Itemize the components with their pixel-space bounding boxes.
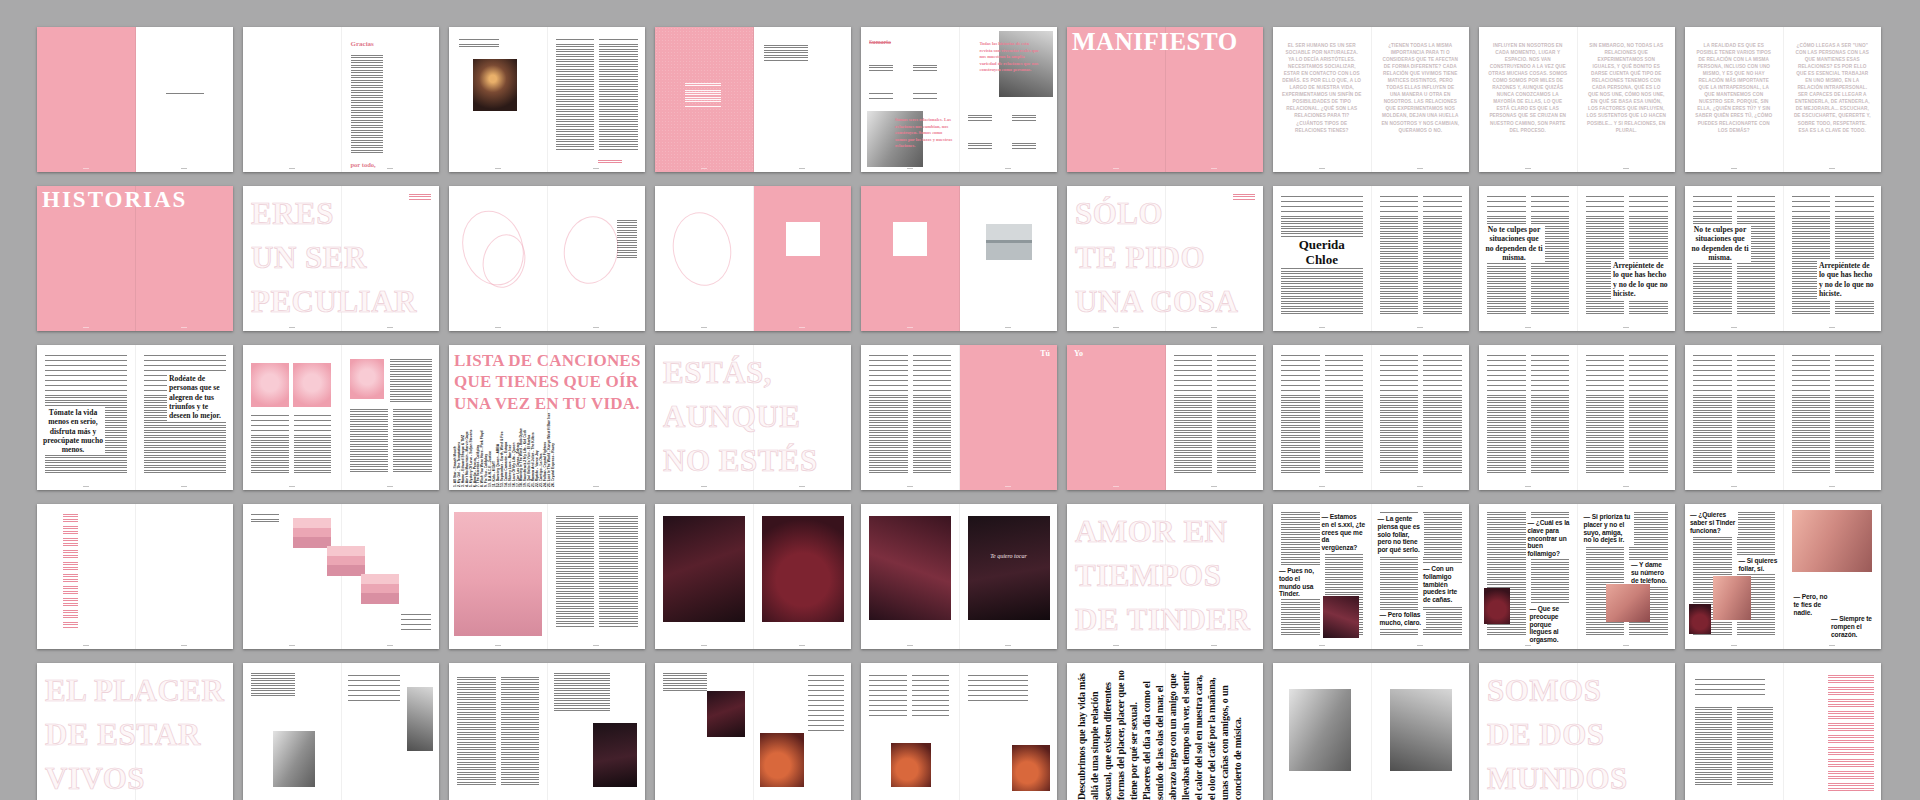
thanks-title: Gracias [351,41,374,48]
body-text-columns [556,516,638,628]
page-right: ¿CÓMO LLEGAS A SER "UNO" CON LAS PERSONA… [1784,27,1882,172]
page-right [1578,345,1676,490]
spread-r1c5[interactable]: Sumario Somos seres relacionales. Las re… [861,27,1057,172]
page-left: — ¿Cuál es la clave para encontrar un bu… [1479,504,1578,649]
photo-dark-red [762,516,844,622]
page-right: Te quiero tocar [960,504,1058,649]
photo-skin [1606,584,1650,622]
caption-text-block [251,514,279,524]
page-left: LA REALIDAD ES QUE ES POSIBLE TENER VARI… [1685,27,1784,172]
page-left [243,27,342,172]
page-left: No te culpes por situaciones que no depe… [1685,186,1784,331]
spread-r2c1[interactable]: HISTORIAS [37,186,233,331]
spread-r4c3[interactable] [449,504,645,649]
spread-r3c8[interactable] [1479,345,1675,490]
page-right: Rodéate de personas que se alegren de tu… [136,345,234,490]
photo-bw-legs [593,723,637,787]
pull-quote: Tómate la vida menos en serio, disfruta … [41,407,105,455]
photo-warm [1012,745,1050,791]
pull-quote: No te culpes por situaciones que no depe… [1689,224,1751,263]
body-text-block [663,673,707,691]
page-right [1372,345,1470,490]
spread-r5c9[interactable] [1685,663,1881,800]
interview-quote: — Si prioriza tu placer y no el suyo, am… [1582,512,1634,545]
page-left: No te culpes por situaciones que no depe… [1479,186,1578,331]
page-left [243,663,342,800]
photo-dark-caption: Te quiero tocar [968,516,1050,620]
letter-title: Querida Chloe [1273,238,1371,267]
photo-bw-nude [1289,689,1351,771]
page-left: INFLUYEN EN NOSOTROS EN CADA MOMENTO, LU… [1479,27,1578,172]
toc-entry [869,93,893,100]
page-right [1372,663,1470,800]
body-text-columns [869,355,951,475]
page-right [960,186,1058,331]
historias-title: HISTORIAS [42,188,231,212]
spread-r1c6[interactable]: MANIFIESTO [1067,27,1263,172]
body-text-block [251,673,295,697]
interview-quote: — Estamos en el s.xxi, ¿te crees que me … [1320,512,1368,553]
photo-hands [1713,576,1751,620]
body-text-block [554,673,610,713]
page-right [1784,663,1882,800]
photo-pink-object [350,359,384,399]
page-right [754,186,852,331]
page-right [754,27,852,172]
spread-r2c7[interactable]: Querida Chloe [1273,186,1469,331]
page-left [37,27,136,172]
interview-quote: — Y dame su número de teléfono. [1629,560,1673,585]
interview-quote: — Que se preocupe porque llegues al orga… [1528,604,1574,645]
sketch-line-art [558,212,623,288]
page-left [1685,345,1784,490]
page-right [136,27,234,172]
page-right [960,663,1058,800]
body-text-block [1695,679,1765,699]
pull-quote: Arrepiéntete de lo que has hecho y no de… [1817,260,1877,299]
toc-entry [1012,143,1036,150]
page-right [548,663,646,800]
body-text-block [968,675,1028,705]
photo-night-street [663,516,745,622]
pull-quote: Arrepiéntete de lo que has hecho y no de… [1611,260,1671,299]
body-text-columns [1487,355,1569,475]
ghost-title: SOMOS DE DOS MUNDOS [1487,669,1673,800]
intro-text-block [459,39,499,47]
row-2: HISTORIAS ERES UN SER PECULIAR [37,186,1920,331]
body-text-columns [1174,355,1256,475]
page-left: — Estamos en el s.xxi, ¿te crees que me … [1273,504,1372,649]
spread-r2c8[interactable]: No te culpes por situaciones que no depe… [1479,186,1675,331]
photo-bw-nude [1390,689,1452,771]
page-right: Arrepiéntete de lo que has hecho y no de… [1784,186,1882,331]
page-left [449,504,548,649]
interview-quote: — Con un follamigo también puedes irte d… [1421,564,1467,605]
body-text-columns [350,409,432,473]
photo-small-red [1484,588,1510,624]
interview-quote: — ¿Cuál es la clave para encontrar un bu… [1526,518,1574,559]
spread-r1c7[interactable]: EL SER HUMANO ES UN SER SOCIABLE POR NAT… [1273,27,1469,172]
label-yo: Yo [1074,350,1083,358]
page-left [1273,663,1372,800]
page-right: ¿TIENEN TODAS LA MISMA IMPORTANCIA PARA … [1372,27,1470,172]
spread-r4c2[interactable] [243,504,439,649]
manifesto-caps-text: SIN EMBARGO, NO TODAS LAS RELACIONES QUE… [1587,42,1667,134]
spread-r4c7[interactable]: — Estamos en el s.xxi, ¿te crees que me … [1273,504,1469,649]
body-text-columns [1380,196,1462,314]
ghost-title: SÓLO TE PIDO UNA COSA [1075,192,1261,324]
page-left: EL SER HUMANO ES UN SER SOCIABLE POR NAT… [1273,27,1372,172]
spread-r2c5[interactable] [861,186,1057,331]
spread-r5c2[interactable] [243,663,439,800]
body-text-columns [1695,707,1773,787]
photo-dark-pink [869,516,951,620]
page-left [861,186,960,331]
spread-r2c9[interactable]: No te culpes por situaciones que no depe… [1685,186,1881,331]
ghost-title: ESTÁS, AUNQUE NO ESTÉS [663,351,849,483]
interview-quote: — Si quieres follar, sí. [1737,556,1781,574]
interview-quote: — Siempre te rompen el corazón. [1829,614,1877,639]
page-right: SIN EMBARGO, NO TODAS LAS RELACIONES QUE… [1578,27,1676,172]
page-left: Tómate la vida menos en serio, disfruta … [37,345,136,490]
spread-r4c5[interactable]: Te quiero tocar [861,504,1057,649]
page-right [548,27,646,172]
photo-beach-pink [293,518,331,548]
page-left: Querida Chloe [1273,186,1372,331]
dedication-text-block [166,93,204,96]
page-right: Gracias por todo, [342,27,440,172]
body-text-columns [1586,355,1668,475]
spread-r5c7[interactable] [1273,663,1469,800]
rose-text-block [1828,675,1874,791]
interview-quote: — ¿Quieres saber si Tinder funciona? [1688,510,1738,535]
spread-r2c2[interactable]: ERES UN SER PECULIAR [243,186,439,331]
photo-sea-horizon [986,224,1032,260]
manifesto-caps-text: ¿TIENEN TODAS LA MISMA IMPORTANCIA PARA … [1381,42,1461,134]
body-text-columns [869,675,949,719]
page-left: Yo [1067,345,1166,490]
page-right [1372,186,1470,331]
playlist-title: LISTA DE CANCIONES QUE TIENES QUE OÍR UN… [454,350,643,414]
row-5: EL PLACER DE ESTAR VIVOS [37,663,1920,800]
spread-r2c6[interactable]: SÓLO TE PIDO UNA COSA [1067,186,1263,331]
page-left [1273,345,1372,490]
spread-r5c6[interactable]: Descubrimos que hay vida más allá de una… [1067,663,1263,800]
page-right: Todas las historias de esta revista son … [960,27,1058,172]
manifesto-caps-text: EL SER HUMANO ES UN SER SOCIABLE POR NAT… [1282,42,1362,134]
body-text-columns [1380,355,1462,475]
page-left [1685,663,1784,800]
spread-r5c1[interactable]: EL PLACER DE ESTAR VIVOS [37,663,233,800]
spread-r1c1[interactable] [37,27,233,172]
toc-entry [913,93,937,100]
row-4: Te quiero tocar AMOR EN TIEMPOS DE TINDE… [37,504,1920,649]
photo-bw-tall [407,687,433,751]
spread-r3c2[interactable] [243,345,439,490]
manifesto-caps-text: INFLUYEN EN NOSOTROS EN CADA MOMENTO, LU… [1488,42,1568,134]
toc-entry [869,65,893,72]
interview-quote: — La gente piensa que es solo follar, pe… [1376,514,1424,555]
spread-r4c9[interactable]: — ¿Quieres saber si Tinder funciona? — S… [1685,504,1881,649]
page-left [1479,345,1578,490]
spread-r4c8[interactable]: — ¿Cuál es la clave para encontrar un bu… [1479,504,1675,649]
page-left [861,663,960,800]
photo-bw-person [273,731,315,787]
photo-warm [891,743,931,787]
body-text-columns [556,39,638,151]
photo-pink-object [251,363,289,407]
page-right [1784,345,1882,490]
white-square-frame [893,222,927,256]
signature-rose-line [598,160,622,164]
spread-r1c4[interactable] [655,27,851,172]
spread-r5c3[interactable] [449,663,645,800]
page-left [449,663,548,800]
pasteboard: Gracias por todo, [0,0,1920,800]
page-right [1166,345,1264,490]
spread-r2c3[interactable] [449,186,645,331]
sketch-line-art [667,208,737,291]
photo-dark [707,691,745,737]
white-center-text-block [685,83,721,107]
page-right: Arrepiéntete de lo que has hecho y no de… [1578,186,1676,331]
interview-quote: — Pues no, todo el mundo usa Tinder. [1277,566,1323,599]
page-left: Sumario Somos seres relacionales. Las re… [861,27,960,172]
photo-beach-pink [361,574,399,604]
spread-r1c2[interactable]: Gracias por todo, [243,27,439,172]
spread-r1c8[interactable]: INFLUYEN EN NOSOTROS EN CADA MOMENTO, LU… [1479,27,1675,172]
spread-r2c4[interactable] [655,186,851,331]
manifesto-caps-text: ¿CÓMO LLEGAS A SER "UNO" CON LAS PERSONA… [1793,42,1873,134]
spread-r3c3[interactable]: LISTA DE CANCIONES QUE TIENES QUE OÍR UN… [449,345,645,490]
caption-text-block [401,614,431,634]
body-text-columns [1693,355,1775,475]
manifesto-caps-text: LA REALIDAD ES QUE ES POSIBLE TENER VARI… [1694,42,1774,134]
body-text-block [348,675,400,703]
page-left [861,504,960,649]
photo-beach-pink [327,546,365,576]
body-text-columns [1281,355,1363,475]
photo-pink-object [293,363,331,407]
photo-pink-shore [454,512,542,636]
spread-r4c1[interactable] [37,504,233,649]
page-right [136,504,234,649]
caption-text-block [617,220,637,260]
row-1: Gracias por todo, [37,27,1920,172]
page-left [243,345,342,490]
toc-entry [913,65,937,72]
body-text-block [351,55,383,155]
spread-r5c4[interactable] [655,663,851,800]
page-right [754,504,852,649]
summary-right-note: Todas las historias de esta revista son … [980,41,1040,74]
page-left [37,504,136,649]
spread-r4c4[interactable] [655,504,851,649]
photo-small-dark [1323,596,1359,638]
photo-small-red [1689,604,1711,634]
thanks-closing: por todo, [351,161,376,168]
page-right [342,345,440,490]
body-text-columns [457,677,539,787]
page-right: — La gente piensa que es solo follar, pe… [1372,504,1470,649]
toc-entry [968,143,992,150]
photo-hands-large [1792,510,1872,572]
ghost-title: EL PLACER DE ESTAR VIVOS [45,669,231,800]
page-left [655,27,754,172]
pull-quote: Rodéate de personas que se alegren de tu… [167,373,229,421]
spread-r5c5[interactable] [861,663,1057,800]
body-text-columns [251,415,331,473]
toc-entry [1012,115,1036,122]
spread-r3c6[interactable]: Yo [1067,345,1263,490]
page-left [655,186,754,331]
page-left [655,504,754,649]
body-text-columns [1792,355,1874,475]
body-text-block [808,675,844,735]
body-text-block [764,45,808,61]
page-right: — Si prioriza tu placer y no el suyo, am… [1578,504,1676,649]
spread-r3c7[interactable] [1273,345,1469,490]
page-left [449,186,548,331]
row-3: Tómate la vida menos en serio, disfruta … [37,345,1920,490]
spread-r5c8[interactable]: SOMOS DE DOS MUNDOS [1479,663,1675,800]
spread-r1c9[interactable]: LA REALIDAD ES QUE ES POSIBLE TENER VARI… [1685,27,1881,172]
ghost-title: AMOR EN TIEMPOS DE TINDER [1075,510,1261,642]
page-left [655,663,754,800]
ghost-title: ERES UN SER PECULIAR [251,192,437,324]
label-tu: Tú [1040,350,1050,358]
page-right: Tú [960,345,1058,490]
interview-quote: — Pero follas mucho, claro. [1378,610,1426,628]
rose-text-column [63,514,78,628]
photo-warm-red [760,733,804,787]
page-right [342,663,440,800]
page-right [548,186,646,331]
pull-quote: No te culpes por situaciones que no depe… [1483,224,1545,263]
toc-entry [968,115,992,122]
page-right [754,663,852,800]
body-text-block [390,359,432,403]
spread-r3c5[interactable]: Tú [861,345,1057,490]
spread-r3c1[interactable]: Tómate la vida menos en serio, disfruta … [37,345,233,490]
page-right [548,504,646,649]
summary-left-note: Somos seres relacionales. Las relaciones… [895,117,953,150]
white-square-frame [786,222,820,256]
summary-heading: Sumario [869,39,891,45]
page-left: — ¿Quieres saber si Tinder funciona? — S… [1685,504,1784,649]
spread-r3c4[interactable]: ESTÁS, AUNQUE NO ESTÉS [655,345,851,490]
rotated-statement-text: Descubrimos que hay vida más allá de una… [1075,669,1255,800]
page-left [449,27,548,172]
manifesto-title: MANIFIESTO [1072,29,1261,55]
spread-r4c6[interactable]: AMOR EN TIEMPOS DE TINDER [1067,504,1263,649]
photo-lit-doorway [473,59,517,111]
photo-caption: Te quiero tocar [968,553,1050,560]
spread-r1c3[interactable] [449,27,645,172]
page-right: — Pero, no te fíes de nadie. — Siempre t… [1784,504,1882,649]
page-left [861,345,960,490]
spread-r3c9[interactable] [1685,345,1881,490]
